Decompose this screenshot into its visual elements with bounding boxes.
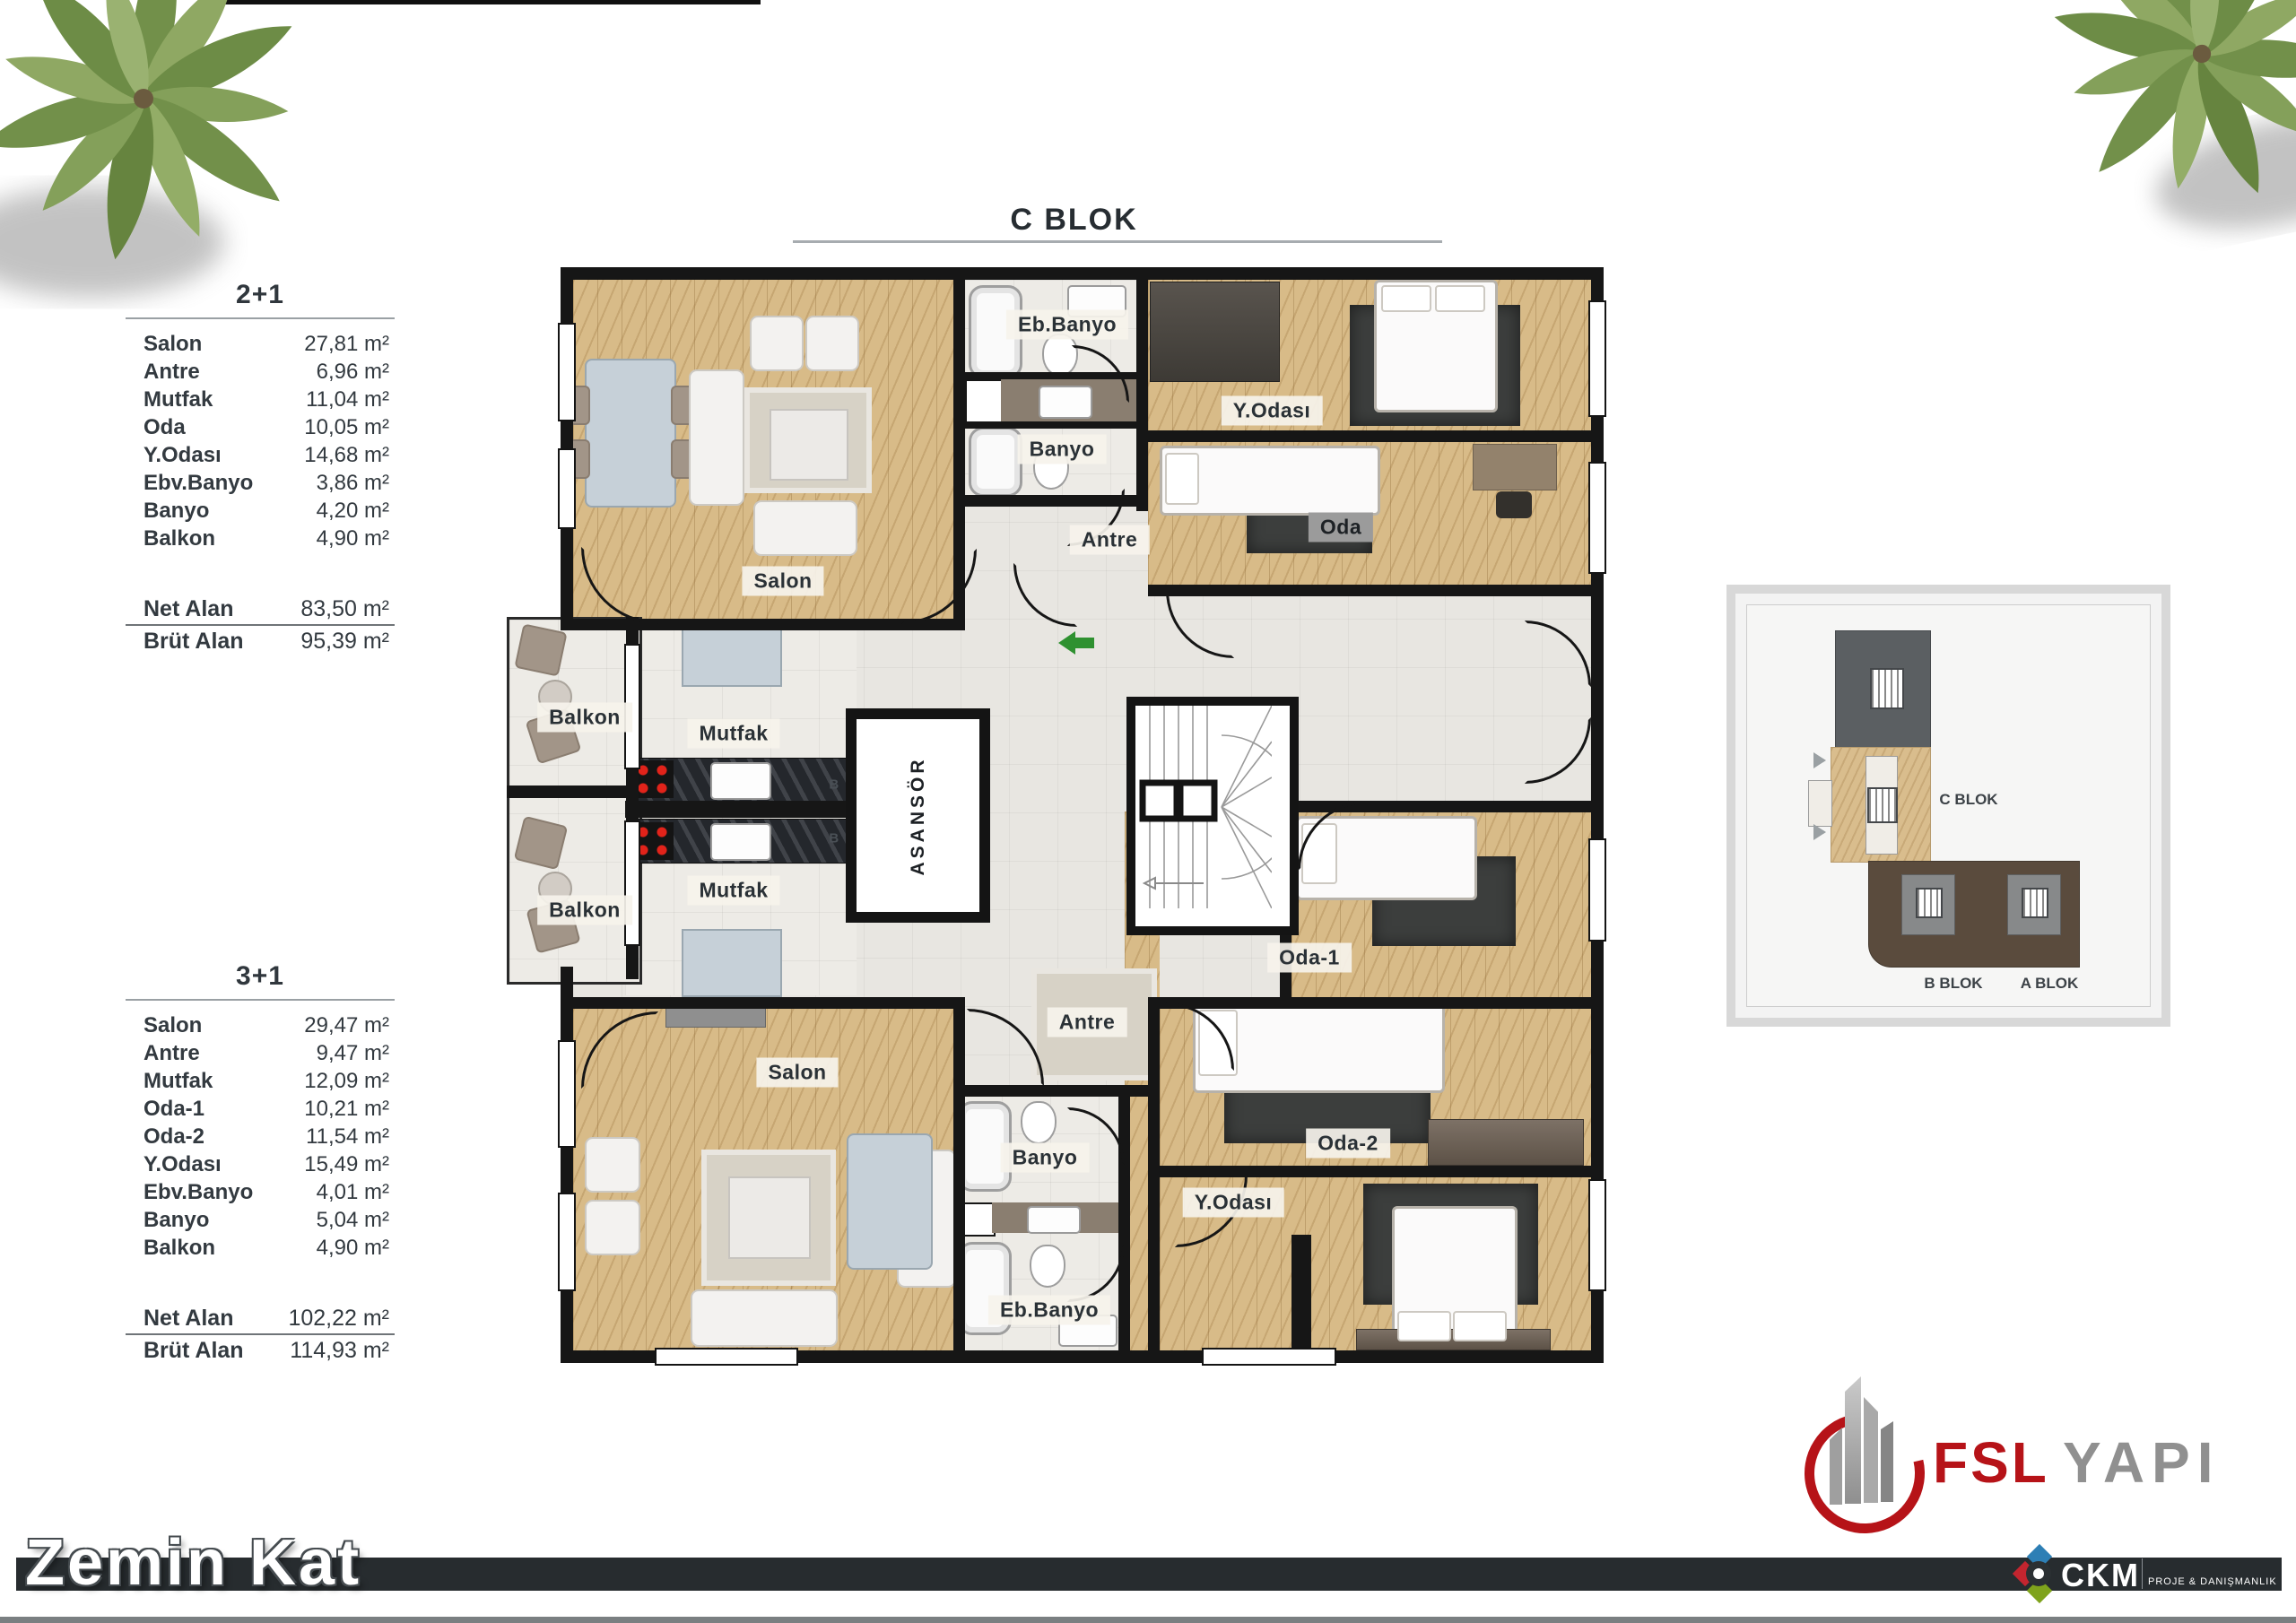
room-label-balkon-top: Balkon	[537, 703, 632, 733]
armchair	[805, 316, 859, 371]
armchair	[750, 316, 804, 371]
area-row: Banyo5,04 m²	[126, 1206, 395, 1234]
room-label-salon-bottom: Salon	[756, 1058, 838, 1088]
kitchen-sink	[710, 762, 771, 800]
room-label-oda2: Oda-2	[1306, 1129, 1390, 1159]
area-row: Mutfak11,04 m²	[126, 386, 395, 413]
area-row: Y.Odası14,68 m²	[126, 441, 395, 469]
site-map-arrow-icon	[1813, 824, 1826, 840]
window	[558, 323, 576, 421]
area-row: Ebv.Banyo4,01 m²	[126, 1178, 395, 1206]
label-b-bottom: B	[829, 831, 839, 846]
room-label-mutfak-bottom: Mutfak	[687, 876, 779, 906]
divider	[126, 317, 395, 319]
desk	[1473, 444, 1557, 490]
gross-area-row: Brüt Alan95,39 m²	[126, 626, 395, 656]
pillow	[1435, 285, 1485, 312]
wall-exterior-top	[561, 267, 1604, 280]
area-row: Antre6,96 m²	[126, 358, 395, 386]
area-row: Oda10,05 m²	[126, 413, 395, 441]
area-row: Banyo4,20 m²	[126, 497, 395, 525]
bathtub	[969, 427, 1022, 497]
pillow	[1381, 285, 1431, 312]
area-row: Y.Odası15,49 m²	[126, 1150, 395, 1178]
room-label-y-odasi-top: Y.Odası	[1222, 396, 1323, 426]
window	[1202, 1348, 1336, 1366]
palm-tree-top-right	[1964, 0, 2296, 314]
area-row: Ebv.Banyo3,86 m²	[126, 469, 395, 497]
room-label-y-odasi-bottom: Y.Odası	[1183, 1188, 1284, 1218]
ckm-circle-dot	[2033, 1568, 2044, 1579]
unit-panel-3plus1: 3+1 Salon29,47 m² Antre9,47 m² Mutfak12,…	[126, 961, 395, 1366]
site-map-stair	[1867, 787, 1898, 823]
bottom-edge-line	[0, 1617, 2296, 1623]
site-map-arrow-icon	[1813, 752, 1826, 768]
wall-kitchen-divider	[625, 801, 857, 818]
area-row: Balkon4,90 m²	[126, 1234, 395, 1262]
wall-banyo2-top	[953, 1085, 1157, 1097]
window	[1588, 462, 1606, 574]
net-area-row: Net Alan83,50 m²	[126, 594, 395, 626]
room-label-mutfak-top: Mutfak	[687, 719, 779, 749]
wall-rooms2-left	[1148, 997, 1160, 1350]
fsl-logo-suffix: YAPI	[2063, 1429, 2221, 1496]
toilet	[1021, 1101, 1057, 1144]
title-underline	[793, 240, 1442, 243]
pillow	[1165, 453, 1199, 505]
wall-bath-divider	[965, 421, 1136, 429]
ckm-name: CKM	[2061, 1557, 2140, 1594]
kitchen-sink	[710, 823, 771, 861]
window	[558, 1040, 576, 1148]
elevator-label: ASANSÖR	[908, 756, 929, 875]
sofa	[753, 500, 857, 556]
area-row: Oda-110,21 m²	[126, 1095, 395, 1123]
room-label-oda1: Oda-1	[1267, 943, 1352, 973]
window	[1588, 1179, 1606, 1291]
site-map-label-bblok: B BLOK	[1924, 975, 1982, 993]
wardrobe	[1150, 282, 1280, 382]
floor-name: Zemin Kat	[25, 1526, 361, 1600]
fsl-building-icon	[1830, 1428, 1842, 1505]
gross-area-row: Brüt Alan114,93 m²	[126, 1335, 395, 1366]
divider	[126, 999, 395, 1001]
desk-chair	[1496, 491, 1532, 518]
room-label-eb-banyo-top: Eb.Banyo	[1006, 310, 1128, 340]
shaft	[965, 379, 1004, 425]
coffee-table	[728, 1176, 811, 1259]
pillow	[1397, 1311, 1451, 1341]
balcony-window	[624, 820, 640, 946]
pillow	[1453, 1311, 1507, 1341]
stairwell	[1126, 697, 1299, 935]
area-row: Salon29,47 m²	[126, 1011, 395, 1039]
entrance-arrow-icon	[1058, 631, 1075, 655]
wall-balcony-divider	[507, 785, 637, 798]
entrance-arrow-stem	[1074, 638, 1094, 648]
bath-sink	[1027, 1206, 1081, 1234]
room-label-antre-top: Antre	[1070, 525, 1150, 555]
net-area-row: Net Alan102,22 m²	[126, 1303, 395, 1335]
room-label-oda-top: Oda	[1309, 513, 1373, 542]
page-title: C BLOK	[933, 203, 1215, 238]
shaft	[960, 1202, 996, 1237]
area-row: Mutfak12,09 m²	[126, 1067, 395, 1095]
dining-table	[847, 1133, 933, 1270]
totals: Net Alan83,50 m² Brüt Alan95,39 m²	[126, 594, 395, 656]
room-label-balkon-bottom: Balkon	[537, 896, 632, 925]
kitchen-table	[682, 929, 782, 997]
wall-oda1-top	[1280, 801, 1591, 812]
unit-name: 3+1	[126, 961, 395, 992]
site-map-entry	[1808, 780, 1832, 827]
stairs-drawing	[1135, 706, 1272, 908]
toilet	[1030, 1245, 1065, 1288]
window	[558, 1193, 576, 1291]
site-map-label-cblok: C BLOK	[1939, 791, 1997, 809]
totals: Net Alan102,22 m² Brüt Alan114,93 m²	[126, 1303, 395, 1366]
ckm-separator	[2142, 1558, 2143, 1589]
room-label-antre-bottom: Antre	[1048, 1008, 1127, 1037]
wall-stub	[1291, 1235, 1311, 1350]
elevator: ASANSÖR	[846, 708, 990, 923]
site-map-stair	[1916, 888, 1943, 918]
fsl-logo-text: FSL	[1933, 1429, 2049, 1496]
ckm-logo: CKM PROJE & DANIŞMANLIK	[2018, 1548, 2242, 1603]
coffee-table	[770, 409, 848, 481]
area-row: Antre9,47 m²	[126, 1039, 395, 1067]
ckm-tagline: PROJE & DANIŞMANLIK	[2148, 1576, 2277, 1587]
unit-panel-2plus1: 2+1 Salon27,81 m² Antre6,96 m² Mutfak11,…	[126, 280, 395, 656]
wall-exterior-left-lower	[561, 967, 573, 1363]
wall-bathcol2-right	[1118, 1097, 1130, 1350]
sofa	[689, 369, 744, 506]
wall-bathcol-right-top	[1136, 280, 1148, 511]
room-label-banyo-top: Banyo	[1018, 435, 1107, 464]
area-row: Salon27,81 m²	[126, 330, 395, 358]
dining-table	[585, 359, 676, 508]
area-row: Oda-211,54 m²	[126, 1123, 395, 1150]
fsl-building-icon	[1845, 1376, 1861, 1504]
sofa	[691, 1289, 838, 1347]
area-row: Balkon4,90 m²	[126, 525, 395, 552]
site-map-stair	[2022, 888, 2048, 918]
wall-salon2-top	[561, 997, 953, 1009]
window	[558, 448, 576, 529]
label-b-top: B	[829, 777, 839, 793]
wall-yodasi-oda	[1148, 430, 1591, 442]
balcony-chair	[514, 623, 567, 676]
armchair	[585, 1137, 640, 1193]
floorplan-sheet: 2+1 Salon27,81 m² Antre6,96 m² Mutfak11,…	[0, 0, 2296, 1623]
armchair	[585, 1200, 640, 1255]
room-label-banyo-bottom: Banyo	[1001, 1143, 1090, 1173]
room-label-eb-banyo-bottom: Eb.Banyo	[988, 1296, 1110, 1325]
fsl-building-icon	[1864, 1397, 1878, 1503]
fsl-building-icon	[1881, 1421, 1893, 1502]
wall-rooms2-top	[1148, 997, 1591, 1009]
window	[655, 1348, 798, 1366]
site-map-label-ablok: A BLOK	[2021, 975, 2079, 993]
window	[1588, 838, 1606, 942]
unit-name: 2+1	[126, 280, 395, 310]
room-label-salon-top: Salon	[742, 567, 823, 596]
site-map-stair	[1870, 668, 1904, 709]
wall-bathcol-left-bottom	[953, 997, 965, 1363]
wardrobe	[1428, 1119, 1584, 1166]
window	[1588, 300, 1606, 417]
